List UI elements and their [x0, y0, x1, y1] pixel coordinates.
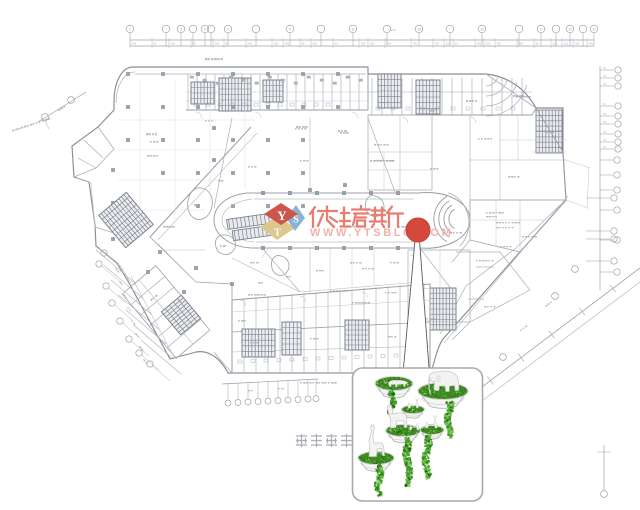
svg-text:700: 700: [413, 42, 418, 46]
svg-text:240: 240: [387, 42, 392, 46]
svg-text:120: 120: [446, 42, 451, 46]
svg-text:5: 5: [204, 27, 206, 31]
svg-text:A-ZONE RCC: A-ZONE RCC: [468, 297, 484, 301]
svg-text:58: 58: [536, 42, 540, 46]
svg-text:21: 21: [592, 27, 596, 31]
svg-text:84: 84: [193, 42, 197, 46]
svg-text:S: S: [293, 215, 299, 226]
svg-text:KIDS STATION: KIDS STATION: [476, 265, 494, 269]
svg-text:84: 84: [154, 42, 158, 46]
svg-text:32: 32: [603, 102, 606, 106]
svg-text:32: 32: [603, 82, 606, 86]
svg-text:240: 240: [589, 42, 594, 46]
svg-text:58: 58: [302, 42, 306, 46]
svg-text:9: 9: [289, 27, 291, 31]
svg-text:32: 32: [603, 66, 606, 70]
svg-text:32: 32: [603, 120, 606, 124]
svg-text:240: 240: [171, 42, 176, 46]
svg-text:32: 32: [603, 112, 606, 116]
svg-text:11: 11: [351, 27, 355, 31]
svg-text:300: 300: [215, 42, 220, 46]
svg-text:700: 700: [575, 42, 580, 46]
svg-text:32: 32: [603, 74, 606, 78]
svg-text:32: 32: [603, 145, 606, 149]
svg-text:T: T: [274, 228, 281, 239]
svg-text:84: 84: [335, 42, 339, 46]
svg-text:Y: Y: [277, 208, 287, 223]
svg-text:32: 32: [603, 138, 606, 142]
svg-text:240: 240: [248, 42, 253, 46]
svg-text:120: 120: [553, 42, 558, 46]
svg-text:420: 420: [486, 42, 491, 46]
svg-text:300: 300: [497, 42, 502, 46]
svg-text:700: 700: [435, 42, 440, 46]
svg-text:13: 13: [417, 27, 421, 31]
svg-text:1: 1: [129, 27, 131, 31]
svg-text:32: 32: [603, 130, 606, 134]
svg-text:420: 420: [519, 42, 524, 46]
svg-text:15: 15: [480, 27, 484, 31]
svg-text:7: 7: [227, 27, 229, 31]
svg-text:17: 17: [539, 27, 543, 31]
svg-text:420: 420: [313, 42, 318, 46]
svg-text:120: 120: [370, 42, 375, 46]
svg-text:700: 700: [361, 42, 366, 46]
svg-text:84: 84: [455, 42, 459, 46]
svg-text:WWW.YTSBLG.COM: WWW.YTSBLG.COM: [310, 227, 453, 239]
svg-text:240: 240: [132, 42, 137, 46]
svg-text:420: 420: [285, 42, 290, 46]
svg-text:120: 120: [564, 42, 569, 46]
svg-text:120: 120: [274, 42, 279, 46]
svg-text:420: 420: [477, 42, 482, 46]
svg-text:84: 84: [226, 42, 230, 46]
svg-text:3: 3: [180, 27, 182, 31]
svg-text:19: 19: [568, 27, 572, 31]
svg-text:1:100: 1:100: [388, 28, 396, 32]
